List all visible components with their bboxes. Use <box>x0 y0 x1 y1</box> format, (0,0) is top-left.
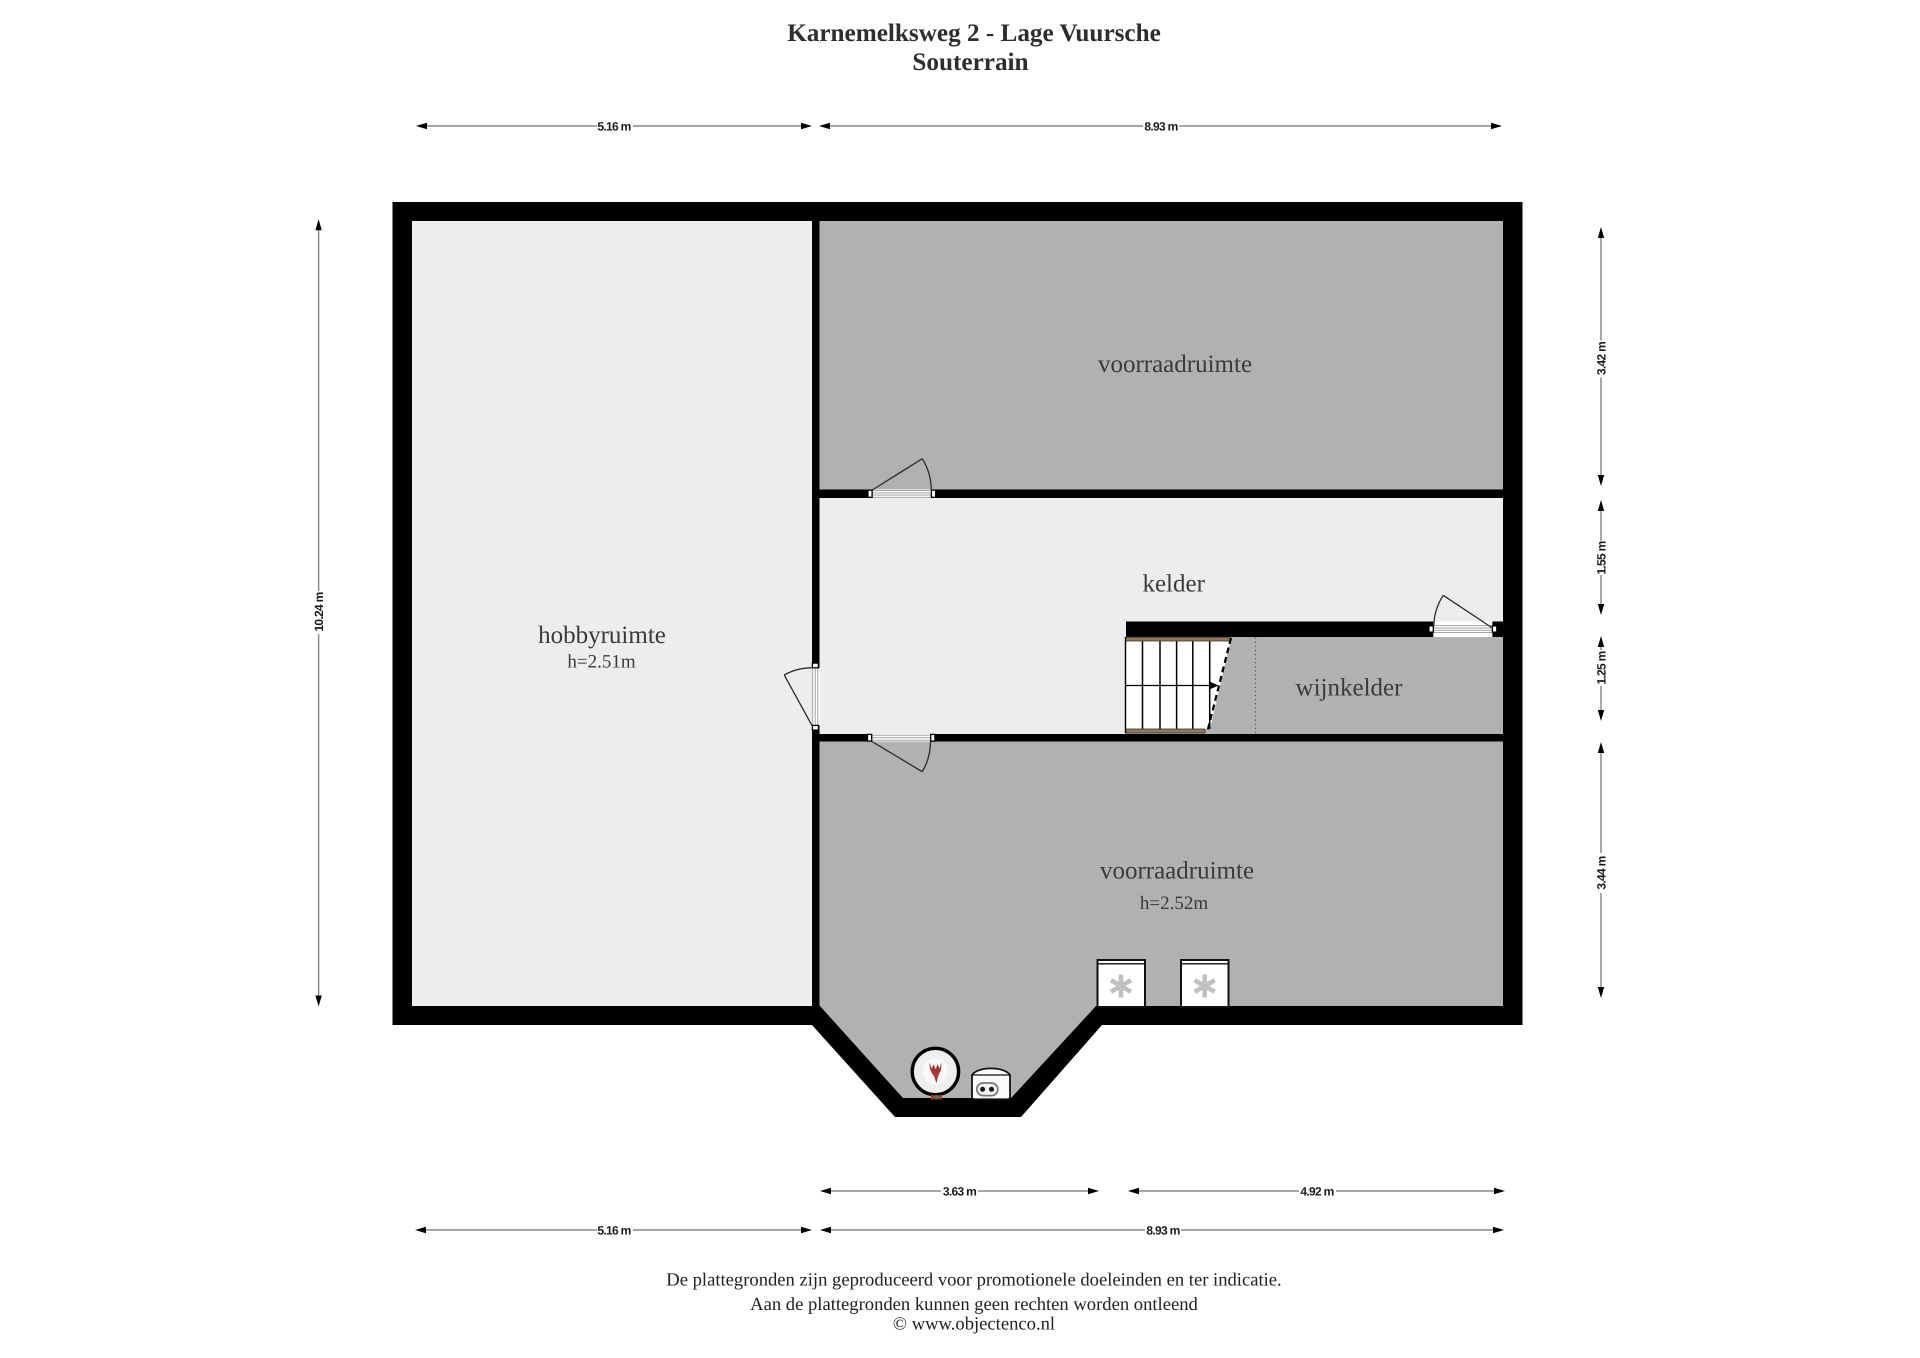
svg-text:1.25 m: 1.25 m <box>1594 651 1608 684</box>
svg-text:Souterrain: Souterrain <box>912 49 1028 76</box>
svg-text:10.24 m: 10.24 m <box>312 592 326 631</box>
svg-text:Aan de plattegronden kunnen ge: Aan de plattegronden kunnen geen rechten… <box>750 1294 1198 1315</box>
svg-text:h=2.52m: h=2.52m <box>1140 893 1208 914</box>
svg-text:h=2.51m: h=2.51m <box>567 652 635 673</box>
svg-text:voorraadruimte: voorraadruimte <box>1100 858 1254 885</box>
svg-text:hobbyruimte: hobbyruimte <box>538 622 666 649</box>
svg-text:3.63 m: 3.63 m <box>943 1184 976 1198</box>
svg-text:wijnkelder: wijnkelder <box>1296 675 1404 702</box>
svg-text:voorraadruimte: voorraadruimte <box>1098 351 1252 378</box>
svg-text:5.16 m: 5.16 m <box>597 1223 630 1237</box>
svg-text:8.93 m: 8.93 m <box>1144 119 1177 133</box>
svg-text:De plattegronden zijn geproduc: De plattegronden zijn geproduceerd voor … <box>666 1270 1281 1291</box>
svg-text:Karnemelksweg 2 - Lage Vuursch: Karnemelksweg 2 - Lage Vuursche <box>787 20 1161 47</box>
svg-text:8.93 m: 8.93 m <box>1146 1223 1179 1237</box>
svg-text:kelder: kelder <box>1142 571 1205 598</box>
svg-text:3.42 m: 3.42 m <box>1594 342 1608 375</box>
svg-text:4.92 m: 4.92 m <box>1300 1184 1333 1198</box>
svg-text:© www.objectenco.nl: © www.objectenco.nl <box>893 1314 1055 1335</box>
svg-text:5.16 m: 5.16 m <box>597 119 630 133</box>
svg-text:3.44 m: 3.44 m <box>1594 856 1608 889</box>
svg-text:1.55 m: 1.55 m <box>1594 541 1608 574</box>
